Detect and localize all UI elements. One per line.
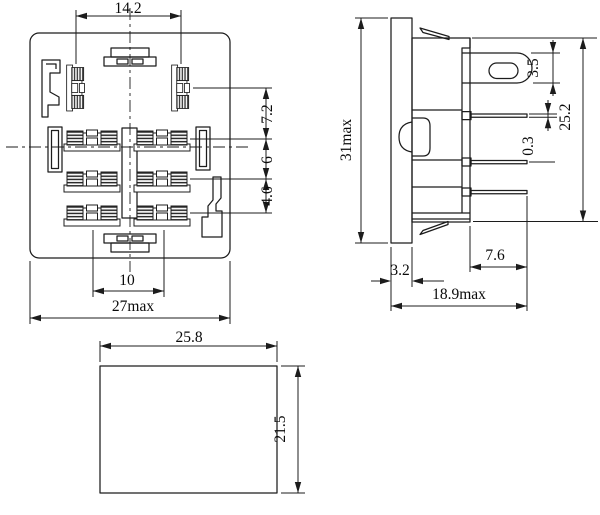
bottom-outline xyxy=(100,366,277,493)
dim-pin-length: 7.6 xyxy=(485,247,505,264)
terminal-top-left xyxy=(67,65,85,111)
terminal-top-right xyxy=(172,65,190,111)
dim-flange-thickness: 3.2 xyxy=(390,262,409,279)
center-slot xyxy=(122,128,137,218)
terminal-row2-right xyxy=(134,130,190,151)
right-guide-rail xyxy=(196,127,210,170)
dim-row-gap-c: 4.6 xyxy=(259,186,276,206)
right-hook-bracket xyxy=(202,177,222,237)
dim-body-height: 25.2 xyxy=(557,103,574,130)
left-hook-inner-line xyxy=(46,64,56,69)
dim-bottom-height: 21.5 xyxy=(272,415,289,442)
front-dimension-arrows xyxy=(30,13,269,321)
dim-bottom-width: 25.8 xyxy=(175,329,202,346)
coil-bump-arc xyxy=(399,122,412,152)
side-view: 31max 3.5 0.3 25.2 3.2 7.6 18.9max xyxy=(338,18,598,311)
drawing-svg: 14.2 7.2 6 4.6 10 27max xyxy=(0,0,600,515)
body-rib-lines xyxy=(412,110,470,213)
terminals xyxy=(64,65,190,226)
terminal-pins xyxy=(462,112,527,196)
dim-overall-depth: 18.9max xyxy=(432,286,486,303)
terminal-row3-left xyxy=(64,171,120,192)
relay-socket-dimension-drawing: 14.2 7.2 6 4.6 10 27max xyxy=(0,0,600,515)
dim-slot-height: 3.5 xyxy=(525,58,542,78)
bottom-latch-lever xyxy=(420,222,448,235)
dim-row-gap-b: 6 xyxy=(259,156,276,164)
coil-bump xyxy=(412,118,430,156)
bottom-view: 25.8 21.5 xyxy=(100,329,305,493)
dim-bottom-pin-spacing: 10 xyxy=(119,272,135,289)
oval-slot xyxy=(489,63,518,79)
mounting-flange xyxy=(391,18,412,243)
side-body xyxy=(412,38,470,222)
terminal-row4-right xyxy=(134,205,190,226)
dim-overall-height: 31max xyxy=(338,119,355,161)
terminal-row2-left xyxy=(64,130,120,151)
rear-step-edge xyxy=(462,38,470,213)
dim-top-pin-spacing: 14.2 xyxy=(114,0,141,17)
dim-pin-thickness: 0.3 xyxy=(520,136,537,156)
terminal-row3-right xyxy=(134,171,190,192)
dim-row-gap-a: 7.2 xyxy=(259,104,276,123)
terminal-row4-left xyxy=(64,205,120,226)
left-hook-bracket xyxy=(42,60,60,117)
dim-overall-width: 27max xyxy=(112,298,154,315)
front-view: 14.2 7.2 6 4.6 10 27max xyxy=(6,0,276,324)
left-guide-rail xyxy=(48,127,62,172)
